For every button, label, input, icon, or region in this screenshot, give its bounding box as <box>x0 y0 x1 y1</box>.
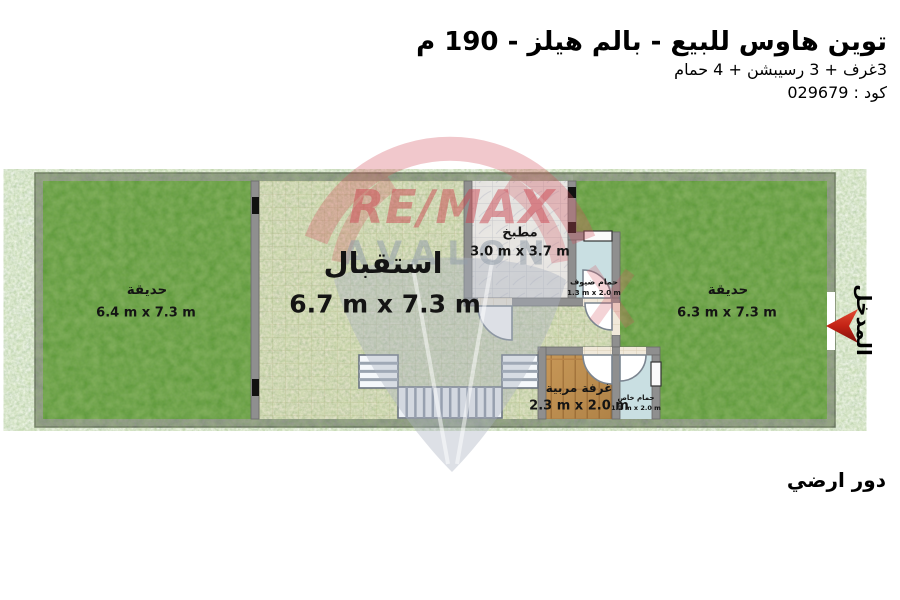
floor-level-label: دور ارضي <box>787 468 886 492</box>
private-bath-window <box>651 362 661 386</box>
garden-right-top-area <box>576 181 827 232</box>
garden-right-dims: 6.3 m x 7.3 m <box>677 306 777 321</box>
garden-right-bottom-area <box>660 347 827 419</box>
listing-title: توين هاوس للبيع - بالم هيلز - 190 م <box>416 26 887 59</box>
kitchen-dims: 3.0 m x 3.7 m <box>470 245 570 260</box>
opening-nanny <box>583 347 612 355</box>
garden-left-dims: 6.4 m x 7.3 m <box>96 306 196 321</box>
garden-left-name: حديقة <box>127 282 168 298</box>
guest-bath-dims: 1.3 m x 2.0 m <box>567 289 621 297</box>
private-bath-name: حمام خاص <box>617 394 654 402</box>
listing-code: كود : 029679 <box>416 83 887 103</box>
opening-private-bath <box>620 347 646 355</box>
listing-header: توين هاوس للبيع - بالم هيلز - 190 م 3غرف… <box>416 26 887 103</box>
kitchen-name: مطبخ <box>502 226 537 241</box>
nanny-room-name: غرفة مربية <box>546 381 613 395</box>
private-bath-dims: 1.2 m x 2.0 m <box>611 404 661 412</box>
wall-building-right-lower <box>612 335 620 347</box>
marker-reception-bottom <box>252 379 259 396</box>
entrance-label: المدخل <box>852 284 876 356</box>
reception-name: استقبال <box>323 246 442 280</box>
floor-plan-page: RE/MAX AVALON توين هاوس للبيع - بالم هيل… <box>0 0 900 600</box>
outer-wall-entrance-gap <box>827 292 835 350</box>
listing-subtitle: 3غرف + 3 رسيبشن + 4 حمام <box>416 60 887 80</box>
marker-reception-top <box>252 197 259 214</box>
guest-bath-name: حمام ضيوف <box>570 278 618 287</box>
garden-left-area <box>43 181 251 419</box>
reception-dims: 6.7 m x 7.3 m <box>289 290 481 319</box>
garden-right-name: حديقة <box>708 282 749 298</box>
